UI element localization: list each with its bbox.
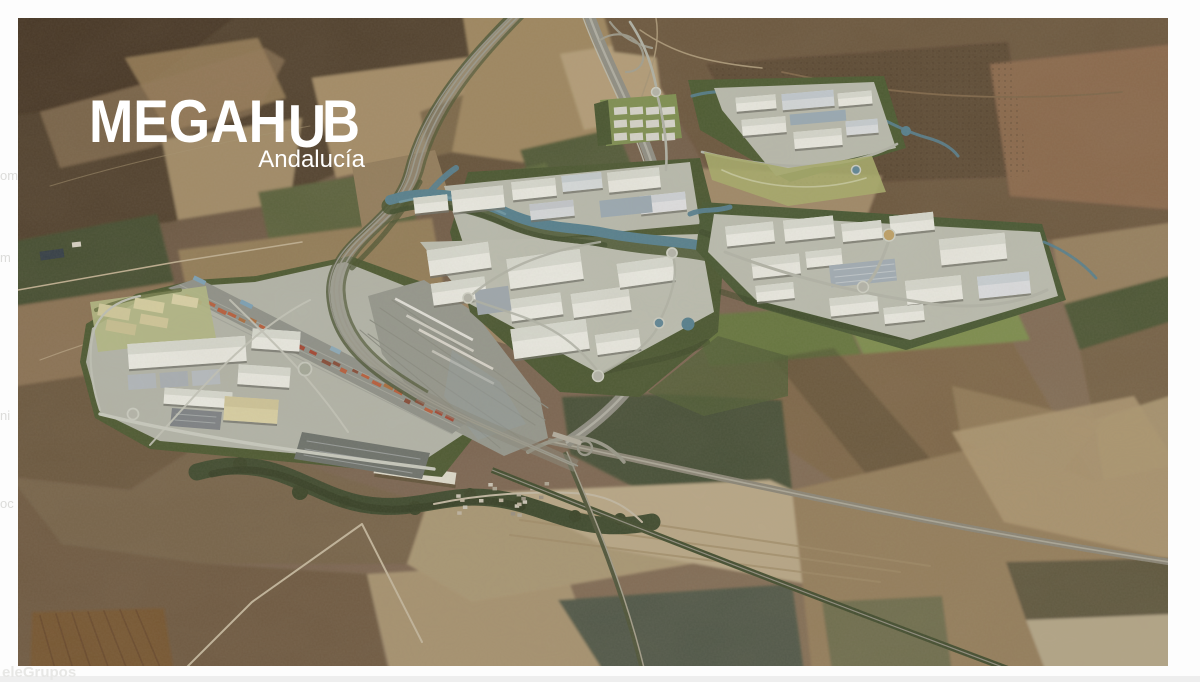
svg-text:m: m <box>0 250 11 265</box>
svg-text:B: B <box>322 88 360 155</box>
svg-text:eleGrupos: eleGrupos <box>2 664 76 681</box>
svg-text:oc: oc <box>0 496 14 511</box>
svg-text:MEGAH: MEGAH <box>89 88 287 155</box>
svg-text:ni: ni <box>0 408 10 423</box>
svg-text:om: om <box>0 168 18 183</box>
svg-text:Andalucía: Andalucía <box>258 146 365 173</box>
